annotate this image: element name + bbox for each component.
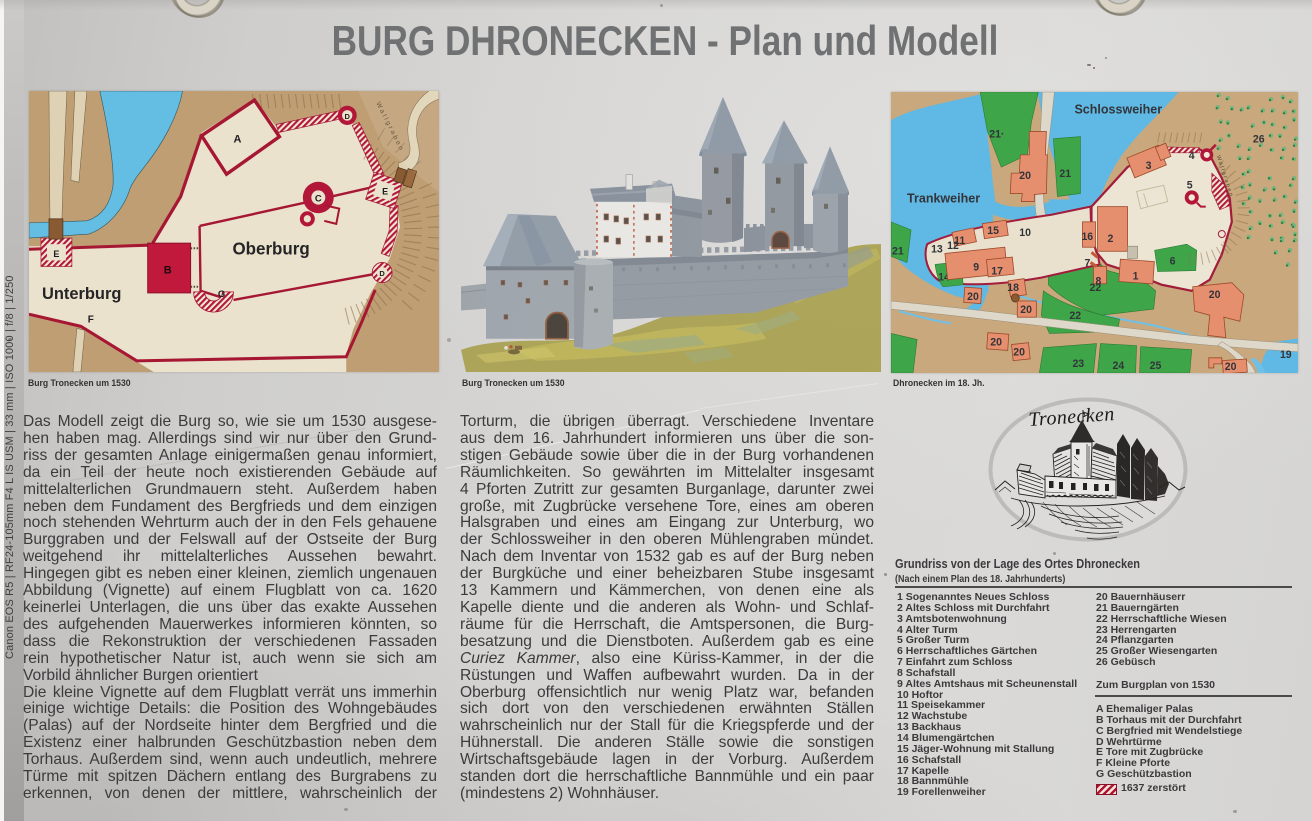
svg-text:18: 18 — [1007, 282, 1019, 294]
svg-text:B: B — [164, 265, 172, 277]
svg-text:D: D — [379, 269, 385, 278]
svg-text:Unterburg: Unterburg — [42, 284, 121, 303]
svg-text:20: 20 — [1225, 361, 1237, 373]
svg-text:20: 20 — [990, 337, 1002, 349]
svg-text:25: 25 — [1150, 360, 1162, 372]
svg-text:Oberburg: Oberburg — [233, 239, 310, 258]
svg-text:20: 20 — [1019, 170, 1031, 182]
svg-text:19: 19 — [1280, 349, 1292, 361]
svg-text:2: 2 — [1108, 233, 1114, 245]
svg-text:26: 26 — [1253, 134, 1265, 146]
svg-text:6: 6 — [1170, 255, 1176, 267]
svg-text:16: 16 — [1081, 231, 1093, 243]
svg-text:G: G — [218, 289, 225, 300]
svg-text:D: D — [345, 112, 351, 121]
svg-text:20: 20 — [1209, 289, 1221, 301]
svg-text:C: C — [315, 194, 322, 205]
svg-text:7: 7 — [1084, 257, 1090, 269]
svg-text:4: 4 — [1189, 150, 1195, 162]
svg-text:13: 13 — [931, 243, 943, 255]
svg-text:9: 9 — [973, 261, 979, 273]
svg-text:Schlossweiher: Schlossweiher — [1074, 102, 1162, 116]
svg-text:21: 21 — [892, 245, 904, 257]
svg-text:21·: 21· — [989, 129, 1004, 141]
svg-text:8: 8 — [1096, 276, 1102, 288]
svg-text:1: 1 — [1133, 271, 1139, 283]
svg-text:23: 23 — [1072, 358, 1084, 370]
svg-text:A: A — [234, 134, 242, 146]
svg-text:E: E — [382, 186, 388, 196]
svg-text:24: 24 — [1113, 360, 1125, 372]
svg-text:5: 5 — [1187, 179, 1193, 191]
svg-text:F: F — [88, 314, 94, 325]
svg-text:10: 10 — [1019, 227, 1031, 239]
svg-text:Trankweiher: Trankweiher — [907, 192, 980, 206]
svg-text:E: E — [53, 249, 59, 259]
svg-text:20: 20 — [1020, 304, 1032, 316]
svg-text:3: 3 — [1146, 160, 1152, 172]
svg-text:21: 21 — [1059, 168, 1071, 180]
svg-text:20: 20 — [1013, 347, 1025, 359]
svg-text:12: 12 — [947, 240, 959, 252]
svg-text:22: 22 — [1069, 310, 1081, 322]
svg-text:15: 15 — [987, 225, 999, 237]
svg-text:20: 20 — [967, 291, 979, 303]
svg-text:17: 17 — [991, 266, 1003, 278]
